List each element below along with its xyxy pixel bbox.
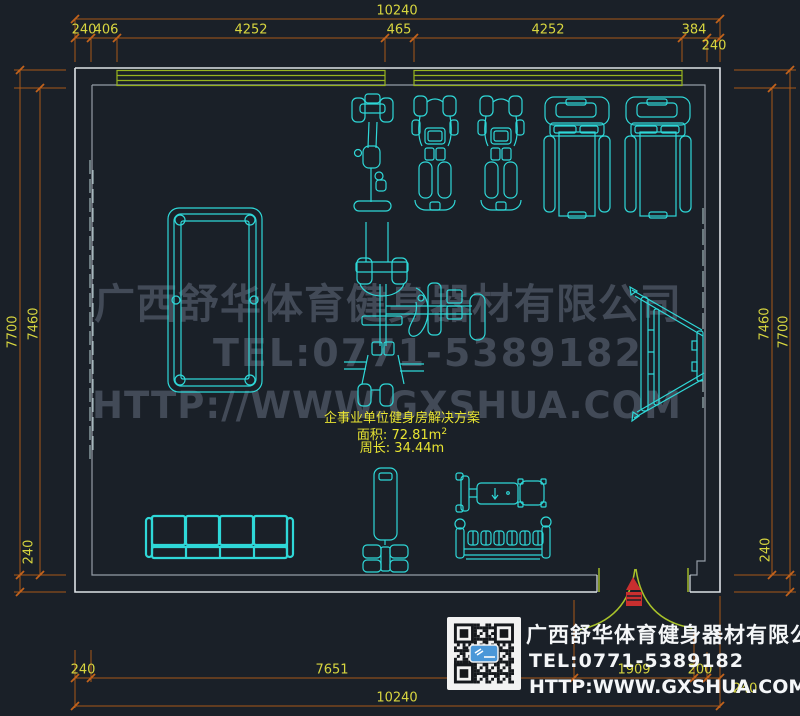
window-left bbox=[117, 71, 385, 86]
dim-top-seg: 465 bbox=[387, 24, 412, 37]
dim-top-overall: 10240 bbox=[376, 5, 417, 18]
dim-top-seg: 4252 bbox=[531, 24, 564, 37]
dim-bottom-overall: 10240 bbox=[376, 692, 417, 705]
dimension-ticks bbox=[16, 15, 794, 710]
dim-bottom-seg: 7651 bbox=[315, 664, 348, 677]
dim-right-bottom: 240 bbox=[760, 538, 773, 563]
strength-machine bbox=[478, 96, 524, 210]
window-right bbox=[414, 71, 682, 86]
dim-right-outer: 7700 bbox=[778, 315, 791, 348]
dim-left-inner: 7460 bbox=[28, 307, 41, 340]
sofa-4-seat bbox=[146, 516, 293, 558]
dim-left-bottom: 240 bbox=[23, 540, 36, 565]
dim-top-seg: 406 bbox=[94, 24, 119, 37]
weight-bench bbox=[456, 473, 546, 512]
dim-left-outer: 7700 bbox=[7, 315, 20, 348]
dim-top-seg: 4252 bbox=[234, 24, 267, 37]
floorplan-drawing bbox=[0, 0, 800, 716]
dim-top-right-wall: 240 bbox=[702, 40, 727, 53]
company-tel: TEL:0771-5389182 bbox=[529, 650, 744, 672]
heavy-bag-stand bbox=[363, 468, 408, 572]
dim-top-seg: 384 bbox=[682, 24, 707, 37]
treadmill bbox=[544, 97, 610, 218]
qr-code bbox=[447, 617, 521, 691]
window-band bbox=[117, 71, 682, 86]
qr-center-logo bbox=[470, 645, 498, 662]
exercise-bike bbox=[352, 94, 393, 211]
plan-perimeter: 周长: 34.44m bbox=[360, 442, 444, 456]
billiard-table bbox=[168, 208, 262, 392]
dim-bottom-seg: 240 bbox=[71, 664, 96, 677]
multi-station-gym bbox=[344, 222, 485, 406]
dumbbell-rack bbox=[455, 517, 551, 559]
situp-board bbox=[630, 287, 704, 421]
dim-right-inner: 7460 bbox=[759, 307, 772, 340]
cad-canvas: 广西舒华体育健身器材有限公司 TEL:0771-5389182 HTTP://W… bbox=[0, 0, 800, 716]
strength-machine bbox=[412, 96, 458, 210]
company-name: 广西舒华体育健身器材有限公司 bbox=[526, 619, 800, 649]
company-website: HTTP:WWW.GXSHUA.COM bbox=[529, 676, 800, 698]
treadmill bbox=[625, 97, 691, 218]
